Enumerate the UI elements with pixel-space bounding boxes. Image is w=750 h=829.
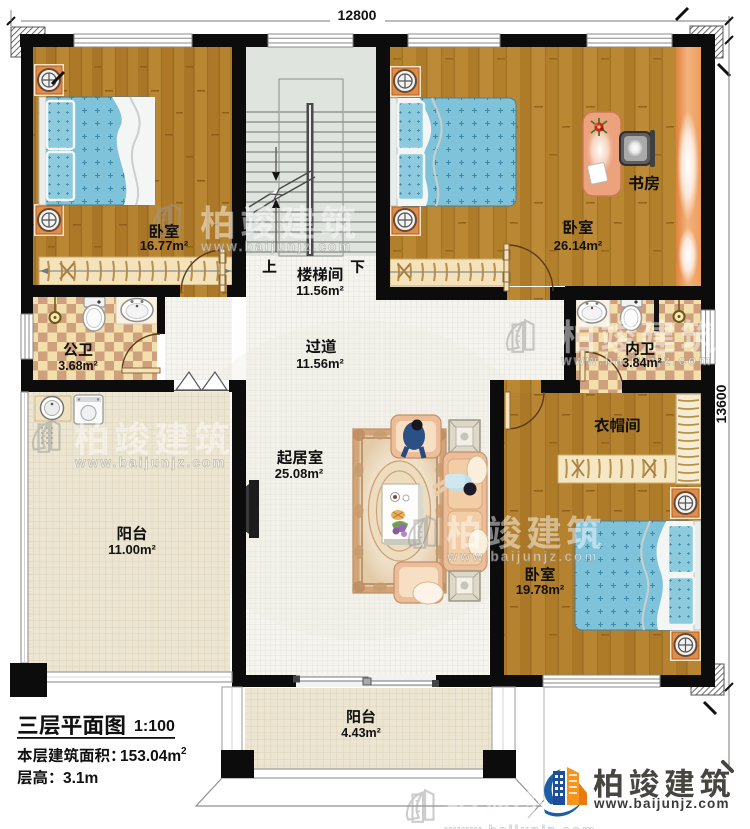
svg-text:3.84m²: 3.84m² xyxy=(622,356,662,370)
svg-text:3.1m: 3.1m xyxy=(63,770,98,787)
svg-text:26.14m²: 26.14m² xyxy=(554,238,603,253)
svg-text:19.78m²: 19.78m² xyxy=(516,582,565,597)
svg-text:1:100: 1:100 xyxy=(134,718,175,735)
svg-text:www.baijunjz.com: www.baijunjz.com xyxy=(74,455,227,470)
svg-text:www.baijunjz.com: www.baijunjz.com xyxy=(593,796,730,811)
svg-text:25.08m²: 25.08m² xyxy=(275,466,324,481)
svg-text:3.68m²: 3.68m² xyxy=(58,359,98,373)
svg-text:2: 2 xyxy=(181,746,187,757)
svg-text:11.56m²: 11.56m² xyxy=(296,283,344,298)
svg-text:12800: 12800 xyxy=(338,7,377,23)
svg-text:11.56m²: 11.56m² xyxy=(296,356,344,371)
svg-text:153.04m: 153.04m xyxy=(120,748,181,765)
svg-text:4.43m²: 4.43m² xyxy=(341,726,381,740)
svg-text:13600: 13600 xyxy=(713,384,729,423)
svg-text:11.00m²: 11.00m² xyxy=(108,542,156,557)
svg-text:www.baijunjz.com: www.baijunjz.com xyxy=(444,823,597,829)
svg-text:16.77m²: 16.77m² xyxy=(140,238,189,253)
svg-text:www.baijunjz.com: www.baijunjz.com xyxy=(446,549,599,564)
svg-text:www.baijunjz.com: www.baijunjz.com xyxy=(200,239,353,254)
